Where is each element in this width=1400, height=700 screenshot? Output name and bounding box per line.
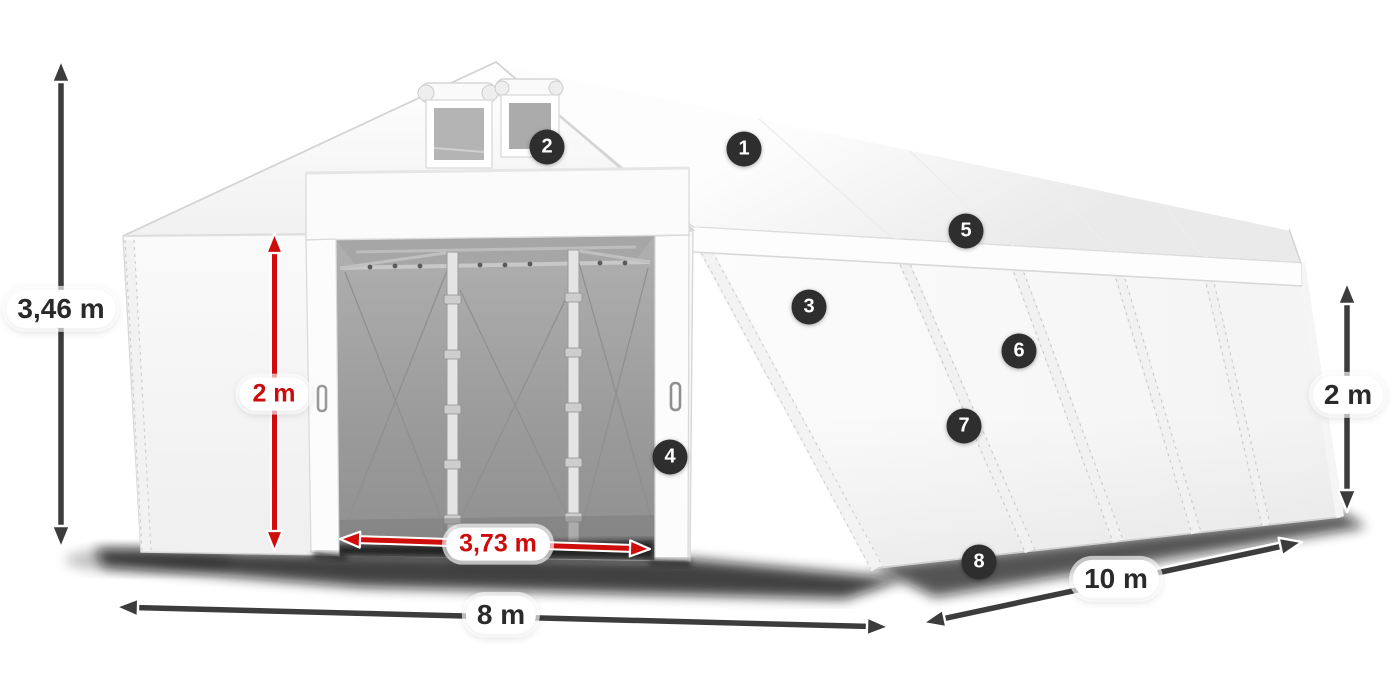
hotspot-badge-6[interactable]: 6 — [1002, 334, 1037, 369]
door-post-left — [306, 239, 339, 556]
hotspot-badge-5[interactable]: 5 — [949, 214, 984, 249]
gable-window-left — [418, 83, 498, 168]
hotspot-badge-7[interactable]: 7 — [947, 409, 982, 444]
dimension-label-door-height: 2 m — [239, 378, 308, 411]
hotspot-badge-1[interactable]: 1 — [727, 132, 762, 167]
door-interior — [333, 236, 655, 560]
hotspot-badge-3[interactable]: 3 — [792, 290, 827, 325]
hotspot-badge-2[interactable]: 2 — [530, 130, 565, 165]
tent-dimensions-diagram: 3,46 m 2 m 3,73 m 8 m 10 m 2 m 1 2 3 4 5… — [0, 0, 1400, 700]
dimension-label-front-width: 8 m — [466, 596, 536, 634]
dimension-label-side-height: 2 m — [1313, 376, 1383, 414]
hotspot-badge-8[interactable]: 8 — [962, 545, 997, 580]
door-header-panel — [306, 168, 689, 240]
dimension-label-side-length: 10 m — [1073, 560, 1159, 598]
dimension-label-total-height: 3,46 m — [6, 290, 115, 328]
door-foot-right — [648, 559, 692, 567]
dimension-label-door-width: 3,73 m — [446, 528, 550, 561]
hotspot-badge-4[interactable]: 4 — [653, 440, 688, 475]
tent-illustration — [0, 0, 1400, 700]
